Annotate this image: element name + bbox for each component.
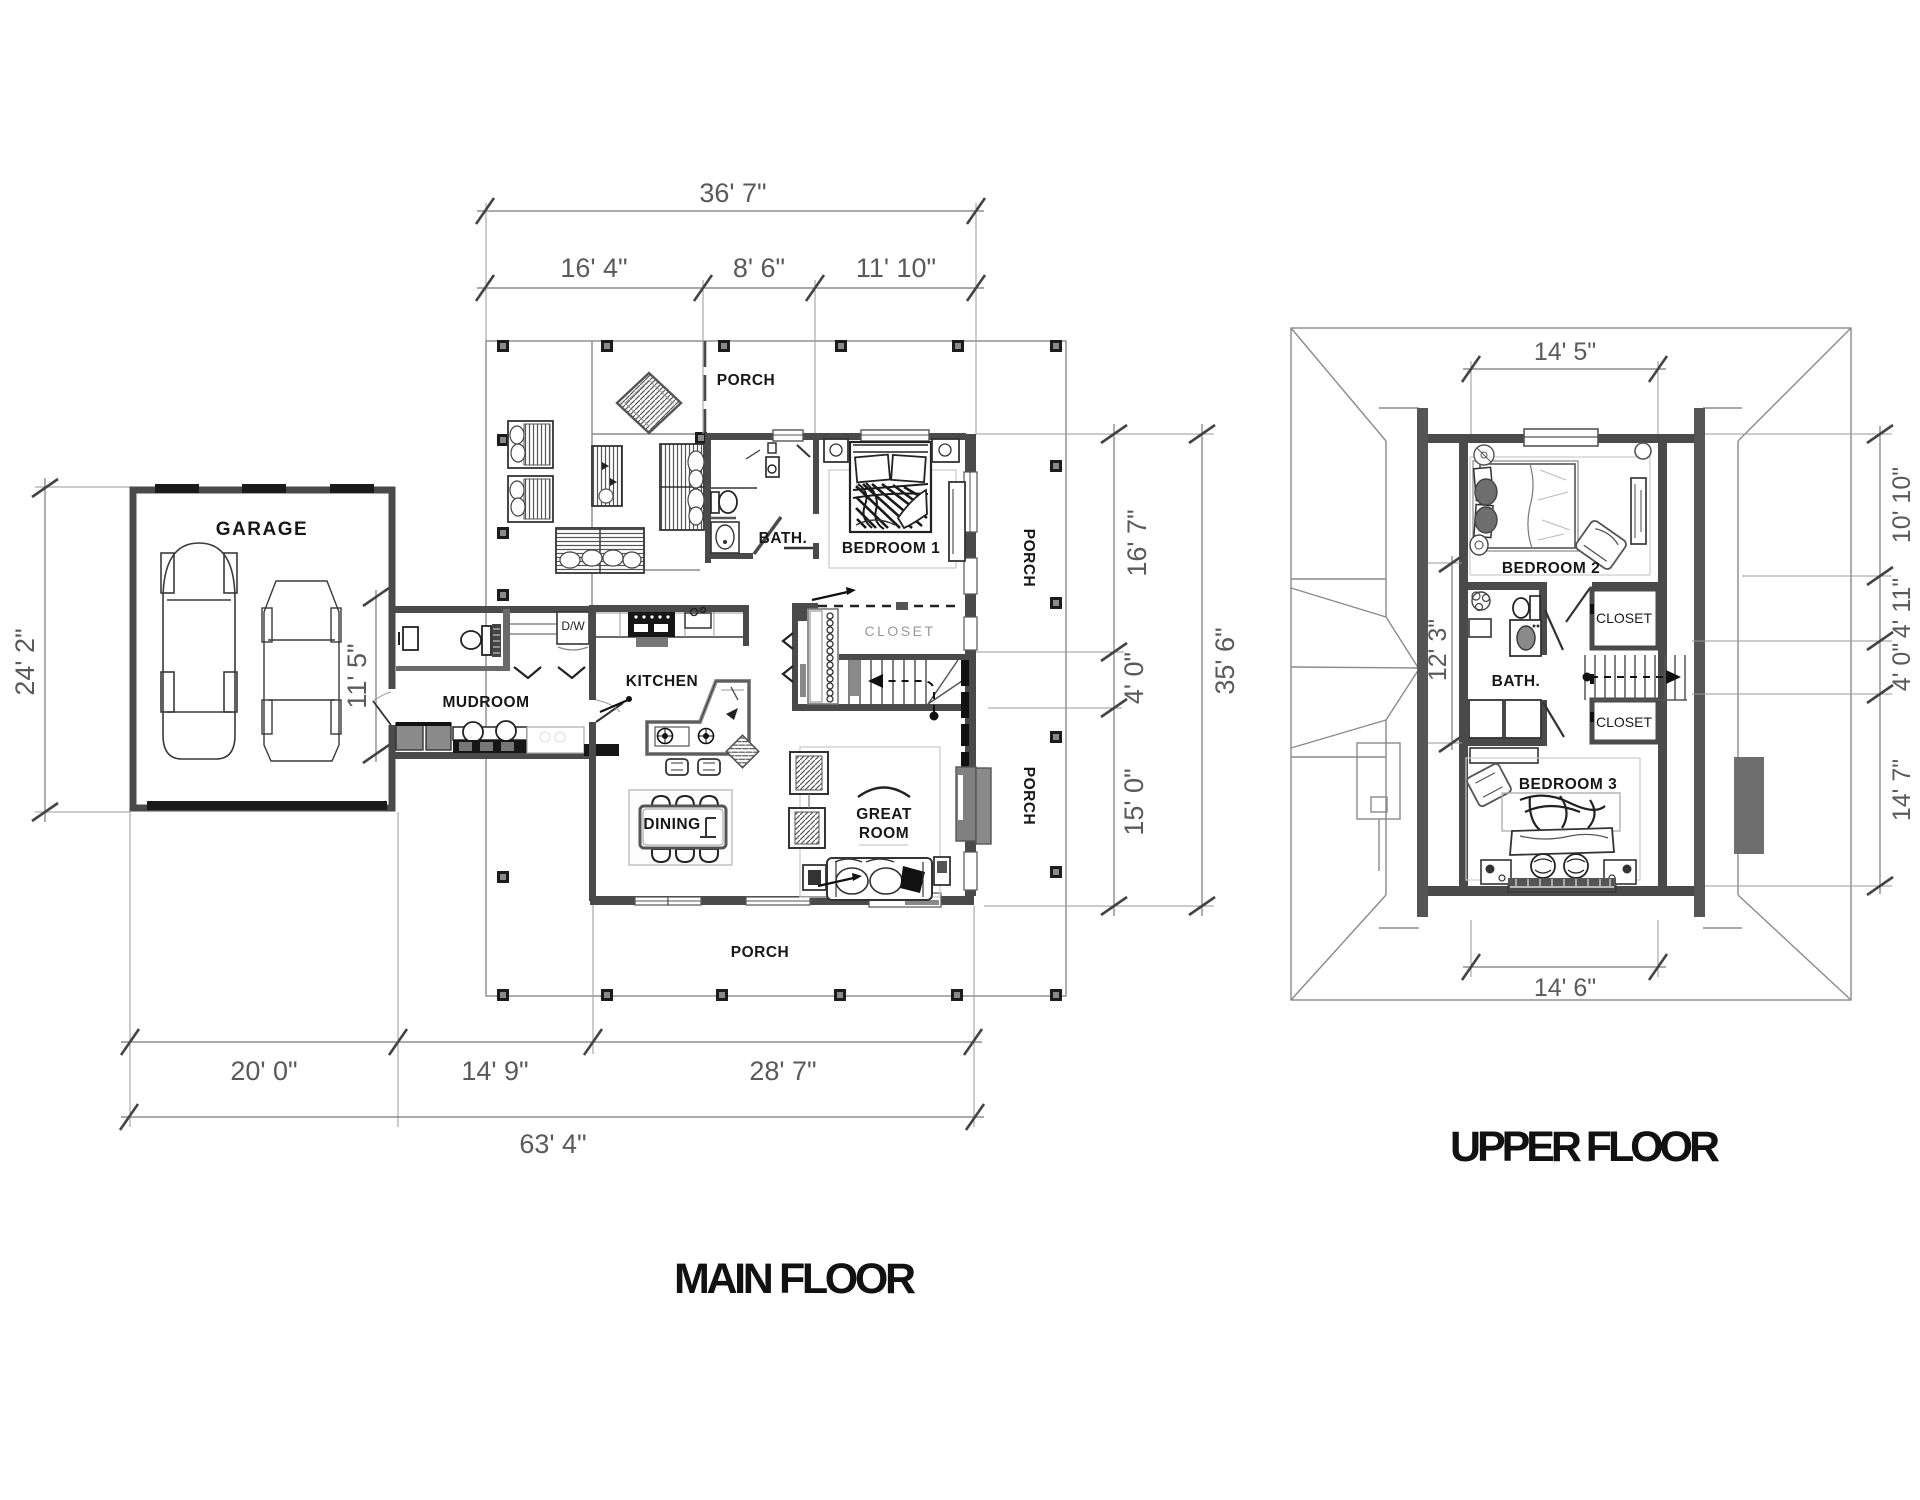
svg-text:MAIN FLOOR: MAIN FLOOR — [674, 1255, 916, 1303]
svg-text:14' 7": 14' 7" — [1888, 759, 1916, 821]
svg-text:28' 7": 28' 7" — [749, 1056, 816, 1086]
svg-text:4' 0": 4' 0" — [1119, 652, 1149, 704]
svg-text:PORCH: PORCH — [731, 944, 789, 961]
svg-text:4' 11": 4' 11" — [1888, 578, 1916, 638]
svg-text:63' 4": 63' 4" — [519, 1129, 586, 1159]
svg-text:14' 5": 14' 5" — [1534, 338, 1596, 366]
svg-text:UPPER FLOOR: UPPER FLOOR — [1450, 1123, 1720, 1171]
svg-text:BATH.: BATH. — [759, 530, 808, 547]
svg-text:BEDROOM 1: BEDROOM 1 — [842, 540, 940, 557]
svg-text:BEDROOM 3: BEDROOM 3 — [1519, 776, 1617, 793]
svg-text:CLOSET: CLOSET — [1596, 714, 1652, 730]
svg-text:11' 10": 11' 10" — [856, 253, 936, 283]
svg-text:D/W: D/W — [561, 619, 585, 633]
svg-text:BATH.: BATH. — [1492, 673, 1541, 690]
svg-text:35' 6": 35' 6" — [1210, 627, 1240, 694]
svg-text:GARAGE: GARAGE — [216, 519, 308, 540]
svg-text:24' 2": 24' 2" — [10, 628, 40, 695]
svg-text:20' 0": 20' 0" — [230, 1056, 297, 1086]
svg-text:ROOM: ROOM — [859, 825, 909, 842]
svg-text:11' 5": 11' 5" — [342, 643, 372, 708]
svg-text:8' 6": 8' 6" — [733, 253, 785, 283]
svg-text:16' 7": 16' 7" — [1122, 509, 1152, 576]
svg-text:16' 4": 16' 4" — [560, 253, 627, 283]
svg-text:10' 10": 10' 10" — [1888, 467, 1916, 543]
svg-text:DINING: DINING — [643, 816, 700, 833]
svg-text:PORCH: PORCH — [717, 372, 775, 389]
svg-text:PORCH: PORCH — [1020, 529, 1037, 587]
svg-text:MUDROOM: MUDROOM — [442, 694, 529, 711]
svg-text:12' 3": 12' 3" — [1424, 619, 1452, 681]
svg-text:CLOSET: CLOSET — [864, 623, 935, 639]
svg-text:14' 6": 14' 6" — [1534, 974, 1596, 1002]
svg-text:PORCH: PORCH — [1020, 767, 1037, 825]
svg-text:36' 7": 36' 7" — [699, 178, 766, 208]
svg-text:BEDROOM 2: BEDROOM 2 — [1502, 560, 1600, 577]
svg-text:CLOSET: CLOSET — [1596, 610, 1652, 626]
svg-text:15' 0": 15' 0" — [1119, 768, 1149, 835]
svg-text:GREAT: GREAT — [856, 806, 912, 823]
svg-text:KITCHEN: KITCHEN — [626, 673, 698, 690]
svg-text:14' 9": 14' 9" — [461, 1056, 528, 1086]
svg-text:4' 0": 4' 0" — [1888, 643, 1916, 691]
